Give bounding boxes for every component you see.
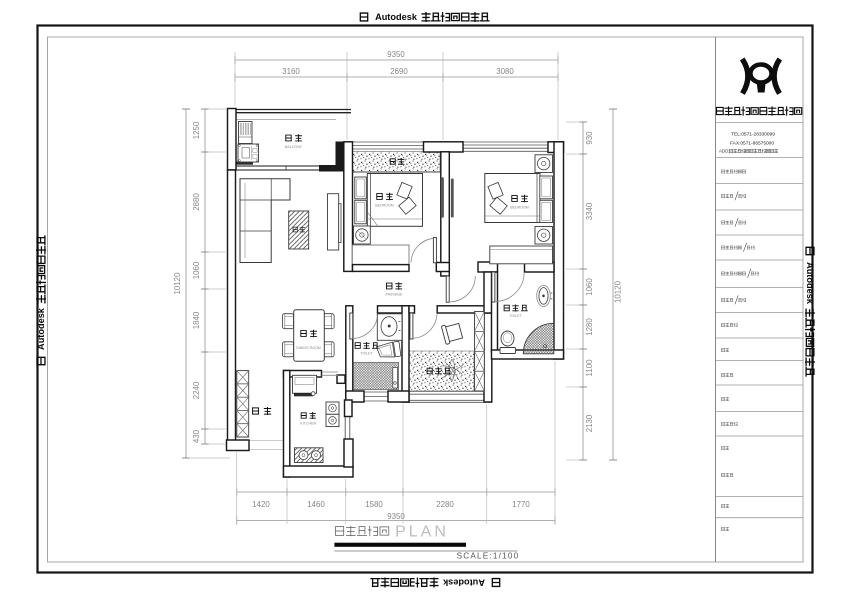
svg-text:1840: 1840 bbox=[192, 311, 201, 329]
svg-text:1580: 1580 bbox=[365, 500, 383, 509]
svg-text:Autodesk: Autodesk bbox=[442, 577, 485, 587]
svg-text:1770: 1770 bbox=[512, 500, 530, 509]
svg-text:DINING ROOM: DINING ROOM bbox=[296, 346, 321, 350]
svg-text:2880: 2880 bbox=[192, 193, 201, 211]
svg-text:930: 930 bbox=[585, 131, 594, 145]
svg-text:TOILET: TOILET bbox=[360, 352, 373, 356]
svg-text:TOILET: TOILET bbox=[509, 314, 522, 318]
svg-text:BALCONY: BALCONY bbox=[285, 145, 303, 149]
svg-text:Autodesk: Autodesk bbox=[36, 307, 46, 350]
svg-text:BEDROOM: BEDROOM bbox=[510, 206, 529, 210]
svg-text:1460: 1460 bbox=[307, 500, 325, 509]
svg-text:2690: 2690 bbox=[390, 67, 408, 76]
svg-text:Autodesk: Autodesk bbox=[375, 12, 418, 22]
svg-text:430: 430 bbox=[192, 429, 201, 443]
svg-text:1060: 1060 bbox=[192, 261, 201, 279]
svg-text:SCALE:1/100: SCALE:1/100 bbox=[457, 552, 520, 561]
svg-text:2130: 2130 bbox=[585, 414, 594, 432]
svg-text:Autodesk: Autodesk bbox=[805, 262, 815, 305]
svg-text:FAX:0571-86575000: FAX:0571-86575000 bbox=[730, 140, 774, 146]
svg-text:10120: 10120 bbox=[173, 272, 182, 295]
svg-text:9350: 9350 bbox=[387, 50, 405, 59]
svg-text:10120: 10120 bbox=[614, 280, 623, 303]
svg-text:ADD:: ADD: bbox=[719, 149, 730, 154]
svg-text:2240: 2240 bbox=[192, 381, 201, 399]
svg-text:BEDROOM: BEDROOM bbox=[375, 204, 394, 208]
svg-text:PLAN: PLAN bbox=[395, 524, 449, 541]
svg-text:3160: 3160 bbox=[282, 67, 300, 76]
svg-text:KITCHEN: KITCHEN bbox=[300, 422, 316, 426]
svg-text:1280: 1280 bbox=[585, 318, 594, 336]
svg-text:1100: 1100 bbox=[585, 359, 594, 377]
svg-text:3080: 3080 bbox=[496, 67, 514, 76]
svg-text:PASSAGE: PASSAGE bbox=[386, 293, 404, 297]
svg-text:TEL:0571-28330099: TEL:0571-28330099 bbox=[731, 132, 775, 138]
svg-text:1420: 1420 bbox=[252, 500, 270, 509]
svg-text:1250: 1250 bbox=[192, 121, 201, 139]
svg-text:2280: 2280 bbox=[436, 500, 454, 509]
svg-text:1060: 1060 bbox=[585, 278, 594, 296]
svg-text:3340: 3340 bbox=[585, 202, 594, 220]
